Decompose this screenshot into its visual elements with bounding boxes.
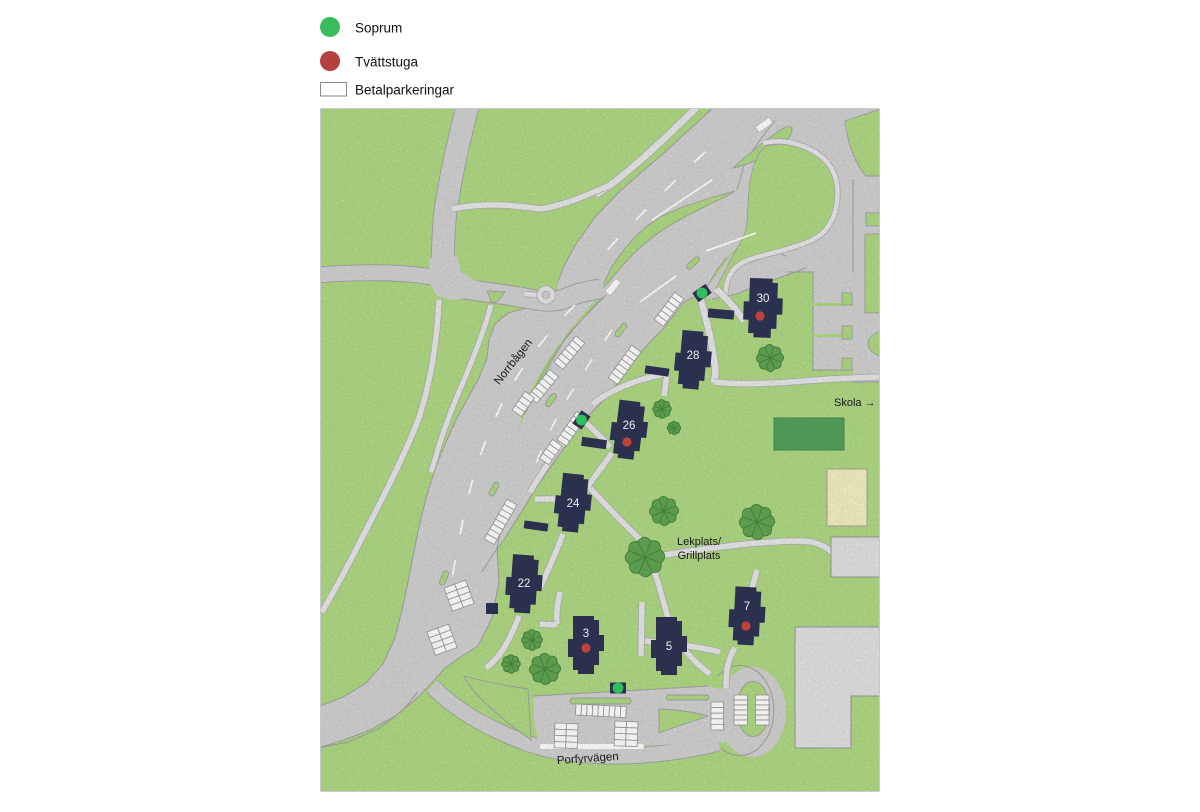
svg-text:Tvättstuga: Tvättstuga bbox=[355, 55, 419, 70]
svg-text:Betalparkeringar: Betalparkeringar bbox=[355, 83, 455, 98]
svg-text:Soprum: Soprum bbox=[355, 21, 402, 36]
